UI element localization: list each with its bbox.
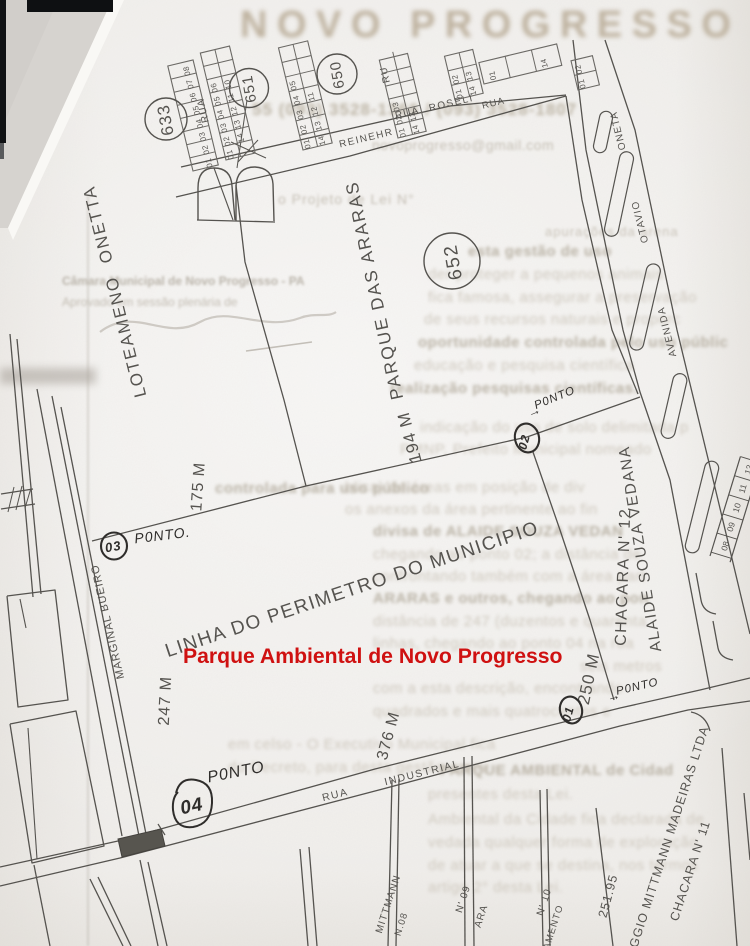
svg-text:02: 02 <box>222 135 233 147</box>
svg-text:AVENIDA: AVENIDA <box>656 305 679 358</box>
svg-text:02: 02 <box>573 63 584 75</box>
svg-text:INDUSTRIAL: INDUSTRIAL <box>383 758 461 788</box>
svg-text:P0NTO.: P0NTO. <box>133 524 191 547</box>
svg-text:652: 652 <box>440 242 467 281</box>
svg-text:N' 09: N' 09 <box>454 884 473 914</box>
svg-text:RUA: RUA <box>481 96 506 112</box>
svg-text:650: 650 <box>327 60 349 91</box>
svg-text:05: 05 <box>212 95 223 107</box>
svg-text:02: 02 <box>450 73 461 85</box>
svg-text:01: 01 <box>577 78 588 90</box>
svg-text:01: 01 <box>559 705 576 723</box>
svg-text:633: 633 <box>154 103 178 137</box>
svg-text:175 M: 175 M <box>188 461 208 512</box>
svg-text:PARQUE DAS ARARAS: PARQUE DAS ARARAS <box>341 179 407 402</box>
svg-text:03: 03 <box>295 109 306 121</box>
svg-text:LINHA DO PERIMETRO DO MUNICIPI: LINHA DO PERIMETRO DO MUNICIPIO <box>163 518 542 663</box>
svg-text:02: 02 <box>200 144 211 156</box>
svg-text:04: 04 <box>178 794 205 819</box>
svg-text:247 M: 247 M <box>156 676 176 726</box>
svg-text:01: 01 <box>397 127 408 139</box>
svg-text:10: 10 <box>731 501 743 513</box>
svg-text:194 M: 194 M <box>394 410 426 465</box>
svg-text:14: 14 <box>316 134 327 146</box>
svg-text:14: 14 <box>539 57 550 68</box>
svg-text:03: 03 <box>197 131 208 143</box>
svg-text:N.08: N.08 <box>393 911 411 937</box>
svg-text:03: 03 <box>218 122 229 134</box>
svg-text:01: 01 <box>203 157 214 169</box>
svg-text:02: 02 <box>298 123 309 135</box>
svg-text:ARA: ARA <box>473 903 491 929</box>
svg-text:REINEHR: REINEHR <box>338 127 395 151</box>
svg-text:P0NTO: P0NTO <box>615 676 660 697</box>
svg-text:P0NTO: P0NTO <box>206 759 266 787</box>
svg-text:OTAVIO: OTAVIO <box>630 199 651 244</box>
svg-text:04: 04 <box>215 108 226 120</box>
svg-text:01: 01 <box>487 70 498 81</box>
svg-text:01: 01 <box>225 149 236 161</box>
svg-text:MARGINAL BUEIRO: MARGINAL BUEIRO <box>89 563 127 680</box>
svg-text:11: 11 <box>737 483 749 495</box>
svg-text:08: 08 <box>181 65 192 77</box>
svg-text:06: 06 <box>209 82 220 94</box>
svg-text:651: 651 <box>239 74 261 105</box>
svg-text:N' 10: N' 10 <box>535 887 554 917</box>
svg-text:251.95: 251.95 <box>596 873 621 919</box>
svg-text:ROSELI: ROSELI <box>428 93 475 114</box>
svg-text:LOTEAMENO ONETTA: LOTEAMENO ONETTA <box>79 183 150 399</box>
svg-text:09: 09 <box>725 521 737 533</box>
svg-text:250 M: 250 M <box>574 651 603 706</box>
svg-text:07: 07 <box>185 78 196 90</box>
svg-text:376 M: 376 M <box>374 710 403 762</box>
svg-text:12: 12 <box>309 105 320 117</box>
svg-text:ONETA: ONETA <box>608 110 628 151</box>
svg-text:05: 05 <box>288 80 299 92</box>
svg-text:01: 01 <box>302 138 313 150</box>
svg-text:04: 04 <box>291 94 302 106</box>
svg-text:11: 11 <box>306 91 317 102</box>
svg-text:03: 03 <box>104 538 123 556</box>
svg-text:12: 12 <box>742 463 750 475</box>
svg-text:13: 13 <box>313 120 324 132</box>
svg-text:RU: RU <box>378 65 393 84</box>
